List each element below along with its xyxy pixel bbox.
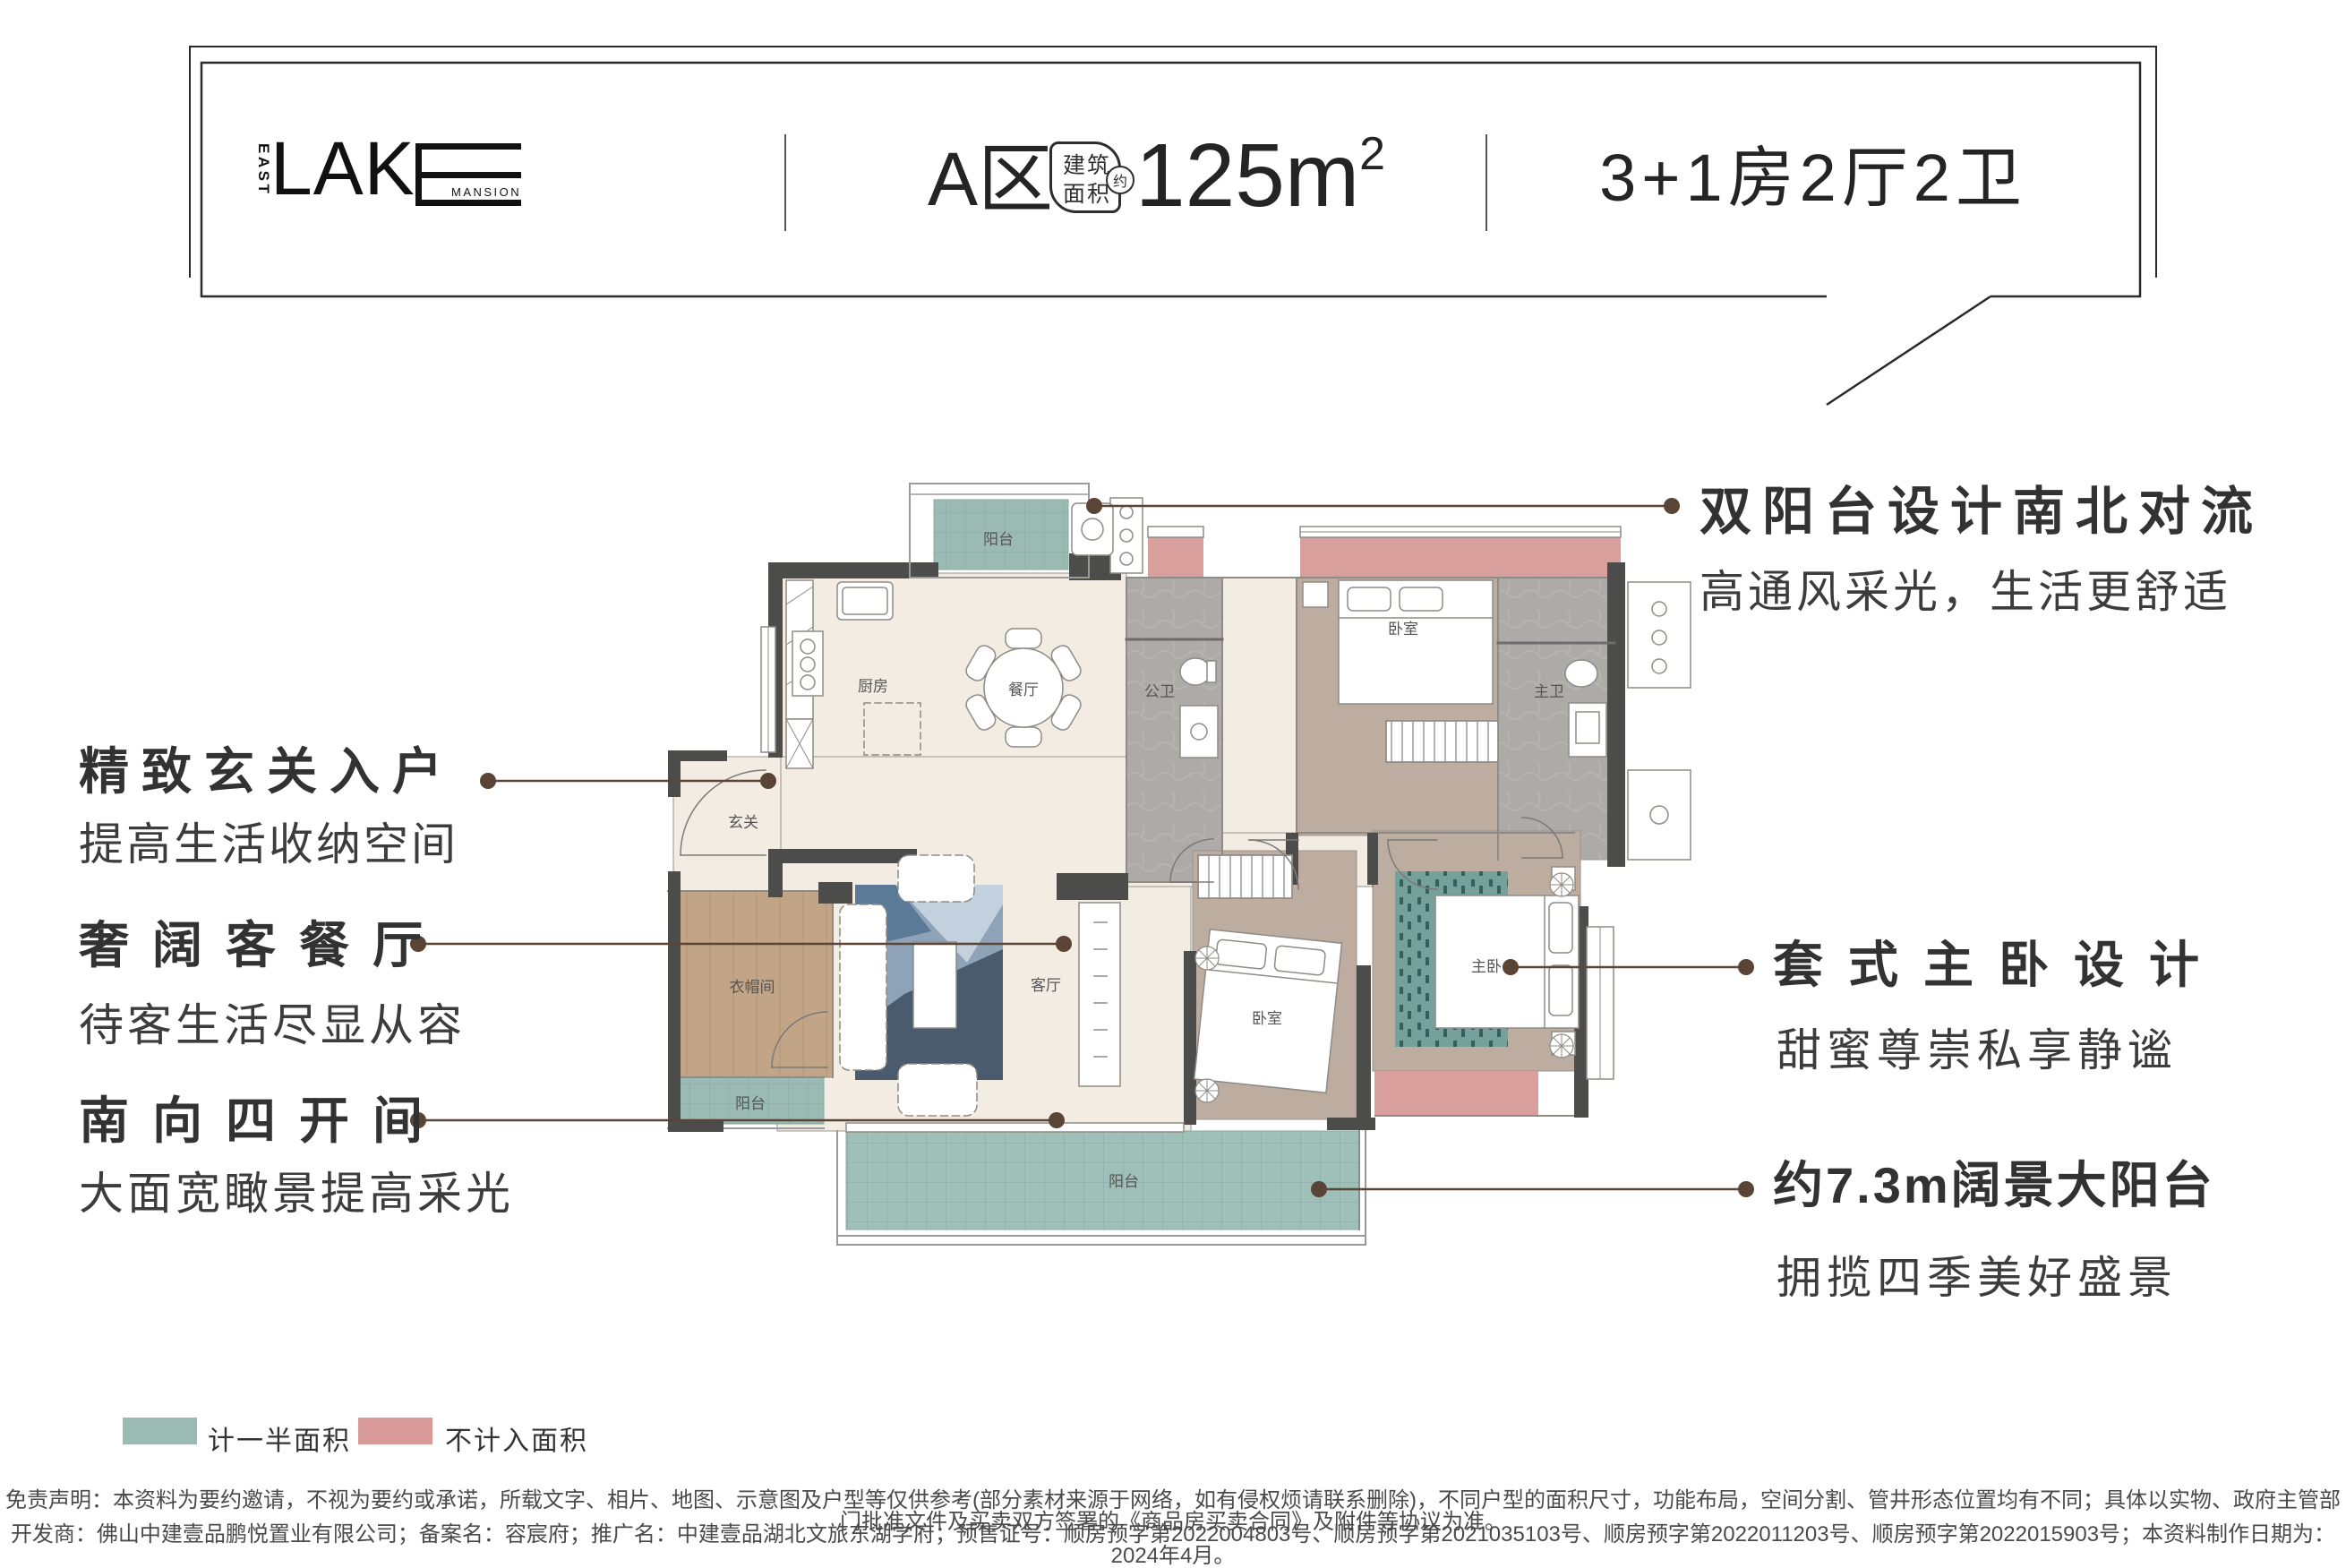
room-label-balcony-north: 阳台	[983, 531, 1014, 548]
legend-swatch-excluded-area	[358, 1418, 432, 1444]
tv-console	[1079, 903, 1120, 1086]
badge-line2: 面积	[1063, 184, 1111, 206]
room-label-kitchen: 厨房	[858, 678, 888, 695]
layout-title: 3+1房2厅2卫	[1486, 145, 2140, 211]
legend-swatch-half-area	[123, 1418, 197, 1444]
legend-label-excluded-area: 不计入面积	[445, 1418, 588, 1458]
toilet	[1565, 660, 1597, 687]
vanity	[1180, 706, 1218, 758]
logo-east-text: EAST	[254, 143, 272, 196]
area-superscript: 2	[1359, 131, 1385, 177]
room-label-balcony-west: 阳台	[735, 1095, 766, 1112]
legend-label-half-area: 计一半面积	[208, 1418, 351, 1458]
room-label-foyer: 玄关	[728, 814, 758, 831]
room-label-balcony-south: 阳台	[1109, 1173, 1139, 1190]
badge-approx: 约	[1106, 166, 1134, 194]
annotation-balconies-subtitle: 高通风采光，生活更舒适	[1700, 570, 2231, 614]
header-frame	[190, 47, 2156, 405]
logo-lake-text: LAK	[270, 131, 415, 206]
logo-mansion-text: MANSION	[451, 185, 521, 199]
room-label-dining: 餐厅	[1008, 681, 1039, 698]
vanity	[1569, 703, 1606, 757]
room-label-bedroom-ne: 卧室	[1388, 621, 1418, 638]
room-label-living: 客厅	[1031, 977, 1061, 994]
room-label-cloakroom: 衣帽间	[730, 979, 775, 996]
annotation-south-bays-title: 南向四开间	[79, 1096, 446, 1146]
room-label-master-bath: 主卫	[1534, 683, 1564, 700]
loveseat	[898, 1064, 977, 1116]
annotation-master-subtitle: 甜蜜尊崇私享静谧	[1777, 1028, 2178, 1073]
room-label-public-bath: 公卫	[1144, 683, 1175, 700]
room-label-master-bedroom: 主卧	[1471, 958, 1502, 975]
annotation-foyer-title: 精致玄关入户	[79, 747, 455, 797]
coffee-table	[913, 942, 956, 1028]
badge-line1: 建筑	[1063, 155, 1111, 177]
bubble-tail	[1827, 296, 1991, 405]
floor-plan: 阳台 厨房 餐厅 公卫 卧室 主卫 玄关 衣帽间 阳台 客厅 卧室 主卧 阳台	[410, 484, 1754, 1245]
disclaimer-line2: 开发商：佛山中建壹品鹏悦置业有限公司；备案名：容宸府；推广名：中建壹品湖北文旅东…	[0, 1524, 2346, 1567]
annotation-living-title: 奢阔客餐厅	[79, 921, 446, 971]
area-value: 125m2	[1135, 131, 1385, 220]
annotation-balconies-title: 双阳台设计南北对流	[1700, 486, 2264, 538]
annotation-master-title: 套式主卧设计	[1773, 940, 2224, 990]
room-label-bedroom-south: 卧室	[1252, 1010, 1282, 1027]
annotation-foyer-subtitle: 提高生活收纳空间	[79, 822, 458, 867]
annotation-big-balcony-title: 约7.3m阔景大阳台	[1773, 1161, 2215, 1211]
stove	[792, 631, 823, 696]
annotation-south-bays-subtitle: 大面宽瞰景提高采光	[79, 1171, 514, 1216]
area-number: 125m	[1135, 131, 1359, 220]
sofa	[840, 904, 886, 1070]
toilet	[1180, 658, 1211, 685]
armchair	[898, 855, 974, 902]
annotation-big-balcony-subtitle: 拥揽四季美好盛景	[1777, 1255, 2178, 1300]
zone-title: A区	[928, 141, 1053, 217]
floorplan-poster: { "header": { "logo_east": "EAST", "logo…	[0, 0, 2346, 1564]
area-badge: 建筑 面积 约	[1049, 141, 1121, 213]
annotation-living-subtitle: 待客生活尽显从容	[79, 1003, 466, 1048]
